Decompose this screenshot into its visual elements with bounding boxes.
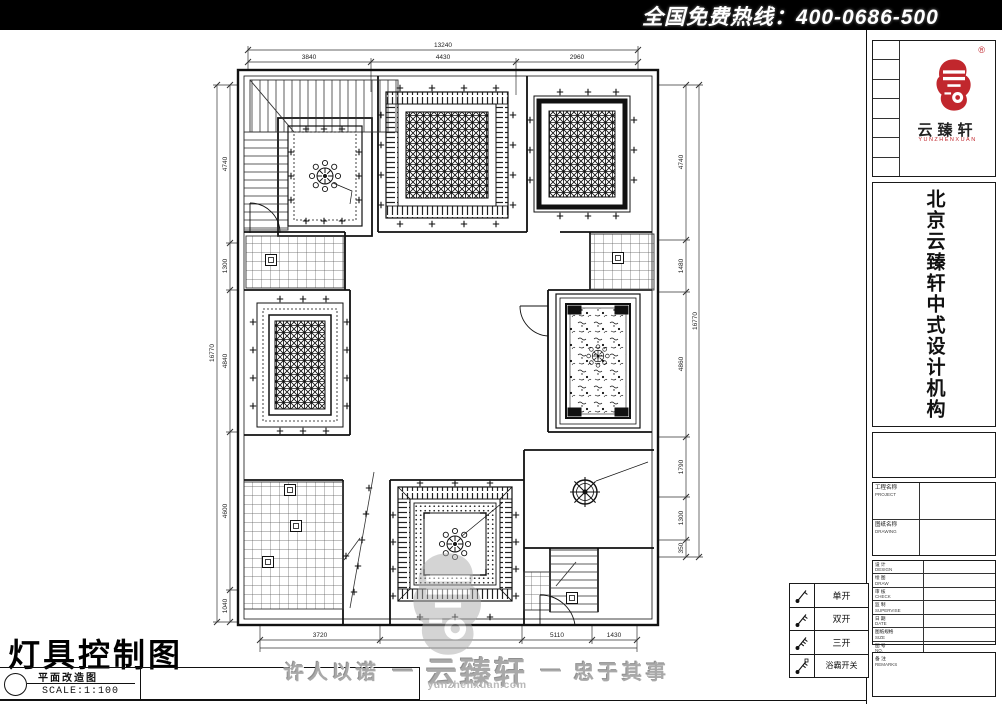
brand-logo: ® 云臻轩 YUNZHENXUAN [900,41,995,176]
dim-top-seg2: 4430 [436,54,451,61]
dim-right-seg4: 1790 [678,459,685,474]
legend-label: 双开 [815,608,868,631]
ceiling-panel-left-middle [257,303,343,427]
row-label: 日 期 [875,616,885,621]
dim-left-overall: 16770 [209,344,216,362]
dim-top-overall: 13240 [434,42,452,49]
row-label: 图纸规格 [875,629,893,634]
ceiling-panel-top-middle [386,92,508,218]
titleblock-project-row: 工程名称PROJECT [873,483,995,520]
switch-double-icon [794,610,810,628]
slogan-right: 忠于其事 [574,656,670,685]
legend-row-triple: 三开 [790,631,868,655]
watermark-seal [402,546,494,662]
dim-top-seg3: 2960 [570,54,585,61]
titleblock-row: 审 核CHECK [873,588,995,601]
ceiling-panel-right-middle [520,294,640,428]
drawing-sheet: { "topbar": { "hotline": "全国免费热线：400-068… [0,0,1002,704]
hotline-bar: 全国免费热线：400-0686-500 [0,0,1002,30]
sheet-bottom-rule [0,700,866,701]
drawing-sub: DRAWING [875,529,917,535]
drawing-value [920,520,995,556]
project-value [920,483,995,519]
dim-bottom-seg3: 1430 [607,632,622,639]
titleblock-row: 绘 图DRAW [873,574,995,587]
ceiling-panel-top-right [534,96,630,212]
dim-left-seg5: 1040 [222,598,229,613]
hotline-text: 全国免费热线：400-0686-500 [642,1,939,31]
row-label: 图 号 [875,643,885,648]
switch-bath-icon [794,657,810,675]
row-sub: DRAW [875,581,921,586]
dim-left-seg1: 4740 [222,156,229,171]
plan-type-label: 平面改造图 [38,669,98,684]
titleblock-note-box: 备 注 REMARKS [872,652,996,697]
dim-right-seg2: 1480 [678,258,685,273]
legend-row-single: 单开 [790,584,868,608]
dim-bottom-seg2: 5110 [550,632,564,639]
row-sub: CHECK [875,594,921,599]
slogan-dash: — [393,659,413,682]
dim-right-seg5: 1300 [678,510,685,525]
dim-right-overall: 16770 [692,312,699,330]
brand-seal-icon [932,55,976,115]
switch-single-icon [794,586,810,604]
row-sub: DATE [875,621,921,626]
legend-label: 单开 [815,584,868,607]
row-sub: SUPERVISE [875,608,921,613]
titleblock-rows: 设 计DESIGN 绘 图DRAW 审 核CHECK 监 制SUPERVISE … [872,560,996,645]
titleblock-empty-box [872,432,996,478]
revision-strip [873,41,900,176]
legend-row-bath: 浴霸开关 [790,655,868,678]
dim-top-seg1: 3840 [302,54,317,61]
row-label: 设 计 [875,562,885,567]
legend-label: 浴霸开关 [815,655,868,678]
plan-bubble-icon [4,673,27,696]
dim-left-seg2: 1300 [222,258,229,273]
project-sub: PROJECT [875,492,917,498]
dim-right-seg6: 350 [678,542,685,553]
row-label: 绘 图 [875,575,885,580]
row-label: 审 核 [875,589,885,594]
brand-romanized: YUNZHENXUAN [900,137,995,143]
brand-slogan: 许人以诺 — 云臻轩 yunzhenxuan.com — 忠于其事 [262,648,692,693]
titleblock-row: 图纸规格SIZE [873,628,995,641]
titleblock-main: 工程名称PROJECT 图纸名称DRAWING [872,482,996,556]
plan-type-underline [27,683,135,684]
titleblock-row: 设 计DESIGN [873,561,995,574]
subtitle-box-divider [140,667,141,700]
registered-mark: ® [978,45,985,55]
logo-box: ® 云臻轩 YUNZHENXUAN [872,40,996,177]
legend-row-double: 双开 [790,608,868,632]
dim-left-seg3: 4840 [222,353,229,368]
row-sub: SIZE [875,635,921,640]
titleblock-drawing-row: 图纸名称DRAWING [873,520,995,556]
row-sub: DESIGN [875,567,921,572]
switch-legend-table: 单开 双开 三开 浴霸开关 [789,583,869,678]
dim-right-seg3: 4860 [678,356,685,371]
switch-triple-icon [794,633,810,651]
dim-right-seg1: 4740 [678,154,685,169]
titleblock-row: 日 期DATE [873,615,995,628]
dim-bottom-seg1: 3720 [313,632,328,639]
legend-label: 三开 [815,631,868,654]
slogan-dash: — [541,659,561,682]
company-title-box: 北京云臻轩中式设计机构 [872,182,996,427]
titleblock-row: 监 制SUPERVISE [873,601,995,614]
row-label: 监 制 [875,602,885,607]
slogan-left: 许人以诺 [284,656,380,685]
note-sub: REMARKS [875,662,993,667]
drawing-label: 图纸名称 [875,522,897,528]
dim-left-seg4: 4600 [222,503,229,518]
project-label: 工程名称 [875,485,897,491]
brand-website: yunzhenxuan.com [426,679,528,691]
company-vertical-title: 北京云臻轩中式设计机构 [921,189,948,420]
scale-label: SCALE:1:100 [42,686,119,697]
